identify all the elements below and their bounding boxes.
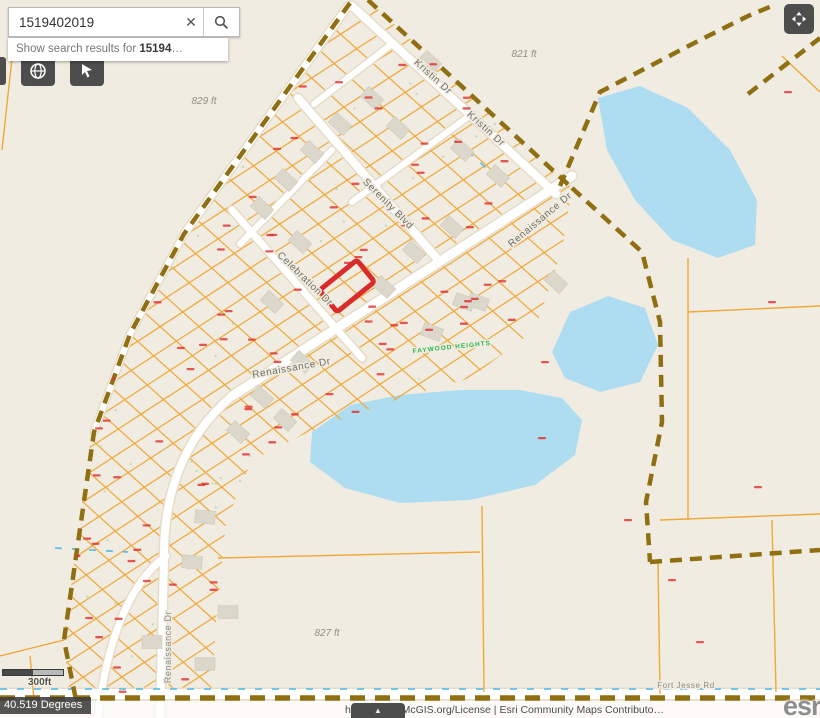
building-footprint <box>218 606 238 619</box>
street-label: Renaissance Dr <box>163 611 173 683</box>
default-extent-button[interactable] <box>784 4 814 34</box>
globe-icon <box>29 62 47 80</box>
scale-label: 300ft <box>28 677 51 688</box>
scale-bar <box>2 669 64 676</box>
elevation-label: 821 ft <box>511 49 537 60</box>
building-footprint <box>194 510 215 525</box>
search-input[interactable] <box>9 15 179 30</box>
search-suggestion[interactable]: Show search results for 15194… <box>8 38 228 61</box>
elevation-label: 827 ft <box>314 628 340 639</box>
building-footprint <box>181 555 202 570</box>
clear-icon[interactable]: ✕ <box>179 14 203 31</box>
four-arrows-icon <box>790 8 808 30</box>
collapsed-tool-button[interactable] <box>0 57 6 85</box>
caret-up-icon: ▲ <box>374 706 382 715</box>
attribution-expand-tab[interactable]: ▲ <box>351 703 405 718</box>
street-label: Fort Jesse Rd <box>657 681 715 690</box>
gis-map-application: Kristin DrKristin DrSerenity BlvdRenaiss… <box>0 0 820 718</box>
suggestion-text: Show search results for <box>16 43 139 55</box>
search-bar: ✕ <box>8 7 240 37</box>
search-icon <box>214 15 229 30</box>
search-button[interactable] <box>204 8 239 36</box>
map-canvas[interactable]: Kristin DrKristin DrSerenity BlvdRenaiss… <box>0 0 820 718</box>
esri-logo: esri <box>783 691 820 718</box>
scale-bar-segment <box>33 670 63 675</box>
elevation-label: 829 ft <box>191 96 217 107</box>
building-footprint <box>195 658 215 671</box>
suggestion-ellipsis: … <box>171 43 183 55</box>
cursor-icon <box>79 63 95 79</box>
degrees-readout: 40.519 Degrees <box>0 697 91 714</box>
suggestion-term: 15194 <box>139 43 171 55</box>
building-footprint <box>142 636 162 649</box>
scale-bar-segment <box>3 670 33 675</box>
